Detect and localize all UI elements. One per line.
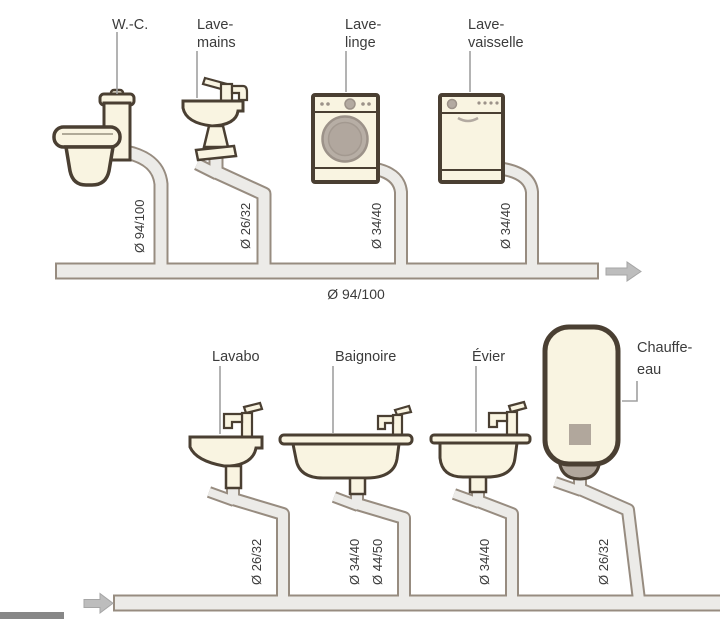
dishwasher-dot: [489, 101, 492, 104]
evier-label: Évier: [472, 348, 505, 365]
wc-pipe-diameter: Ø 94/100: [132, 200, 147, 254]
lave-vaisselle-figure: [440, 95, 503, 182]
washer-dot: [361, 102, 365, 106]
evier-tap-body: [507, 412, 517, 435]
washer-dot: [367, 102, 371, 106]
lave-vaisselle-label-line2: vaisselle: [468, 35, 524, 51]
pipe-diameter-labels: Ø 94/100 Ø 26/32 Ø 34/40 Ø 34/40 Ø 94/10…: [132, 200, 611, 586]
chauffe-eau-panel: [569, 424, 591, 445]
lave-linge-label-line2: linge: [345, 35, 376, 51]
evier-pipe-diameter: Ø 34/40: [477, 539, 492, 585]
baignoire-tub: [293, 444, 399, 478]
baignoire-figure: [280, 406, 412, 494]
baignoire-tap-body: [393, 415, 402, 435]
lave-vaisselle-pipe-diameter: Ø 34/40: [498, 203, 513, 249]
dishwasher-dot: [495, 101, 498, 104]
lave-mains-pipe-diameter: Ø 26/32: [238, 203, 253, 249]
lave-mains-figure: [183, 78, 247, 160]
lave-linge-pipe-diameter: Ø 34/40: [369, 203, 384, 249]
washer-drum-inner: [329, 123, 362, 156]
evier-pedestal: [470, 477, 486, 492]
lave-linge-label-line1: Lave-: [345, 17, 381, 33]
baignoire-pedestal: [350, 478, 365, 494]
lavabo-tap-spout: [224, 414, 242, 428]
evier-tap-spout: [489, 413, 507, 427]
toilet-seat: [54, 127, 120, 147]
lave-mains-tap-spout: [232, 86, 247, 100]
lave-vaisselle-label-line1: Lave-: [468, 17, 504, 33]
lave-mains-bracket: [204, 126, 228, 147]
chauffe-eau-pipe-diameter: Ø 26/32: [596, 539, 611, 585]
chauffe-eau-figure: [545, 327, 618, 479]
lave-mains-label-line1: Lave-: [197, 17, 233, 33]
dishwasher-dot: [483, 101, 486, 104]
lave-mains-basin: [183, 101, 243, 126]
top-collector-diameter: Ø 94/100: [327, 286, 385, 302]
lave-mains-label-line2: mains: [197, 35, 236, 51]
washer-knob: [345, 99, 355, 109]
lavabo-tap-lever: [244, 403, 262, 413]
pipe-fills: [57, 150, 720, 603]
bottom-flow-arrow-icon: [84, 594, 113, 614]
lave-linge-figure: [313, 95, 378, 182]
washer-dot: [326, 102, 330, 106]
dishwasher-dot: [477, 101, 480, 104]
bottom-left-bar: [0, 612, 64, 619]
lavabo-basin: [190, 437, 262, 466]
chauffe-eau-leader-line: [622, 381, 637, 401]
diagram-svg: W.-C. Lave- mains Lave- linge Lave- vais…: [0, 0, 720, 619]
top-flow-arrow-icon: [606, 262, 641, 281]
baignoire-pipe-diameter-2: Ø 44/50: [370, 539, 385, 585]
evier-figure: [431, 402, 530, 492]
lavabo-tap-body: [242, 413, 252, 437]
baignoire-pipe-diameter-1: Ø 34/40: [347, 539, 362, 585]
evier-bowl: [440, 443, 517, 477]
lavabo-label: Lavabo: [212, 349, 260, 365]
toilet-figure: [54, 90, 134, 185]
wc-label: W.-C.: [112, 17, 148, 33]
chauffe-eau-label-line2: eau: [637, 362, 661, 378]
lavabo-pipe-diameter: Ø 26/32: [249, 539, 264, 585]
baignoire-label: Baignoire: [335, 349, 396, 365]
baignoire-tap-lever: [395, 406, 411, 415]
dishwasher-knob: [448, 100, 457, 109]
baignoire-tap-spout: [378, 416, 393, 429]
evier-tap-lever: [509, 402, 526, 412]
lave-mains-foot: [196, 146, 236, 160]
washer-dot: [320, 102, 324, 106]
lavabo-figure: [190, 403, 262, 488]
plumbing-diagram: W.-C. Lave- mains Lave- linge Lave- vais…: [0, 0, 720, 619]
chauffe-eau-label-line1: Chauffe-: [637, 340, 693, 356]
lavabo-pedestal: [226, 466, 241, 488]
toilet-bowl: [66, 147, 113, 185]
